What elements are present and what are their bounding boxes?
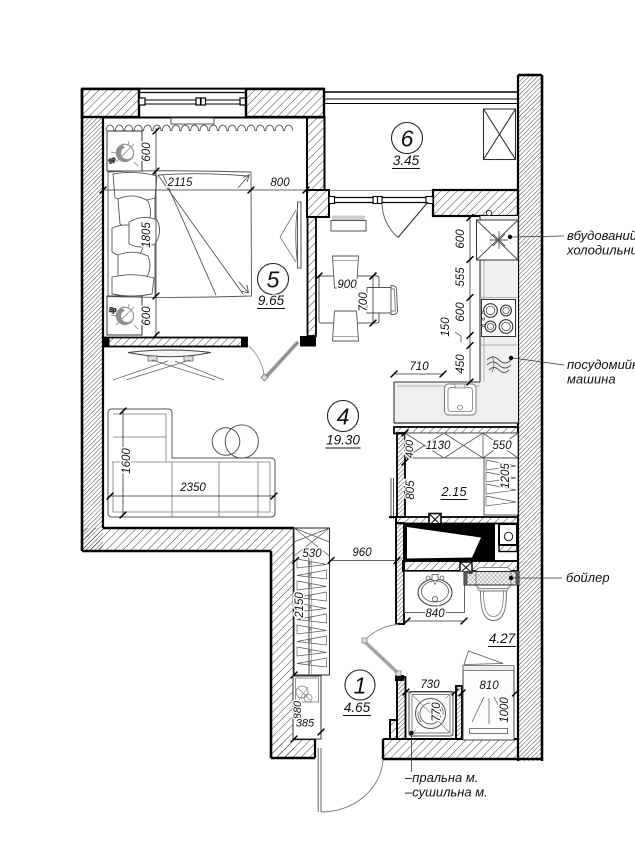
svg-text:1000: 1000: [499, 697, 511, 723]
svg-text:бойлер: бойлер: [566, 570, 610, 585]
svg-text:770: 770: [431, 702, 443, 722]
svg-text:6: 6: [401, 125, 414, 151]
svg-text:710: 710: [409, 361, 429, 373]
svg-text:530: 530: [302, 548, 322, 560]
svg-text:600: 600: [455, 229, 467, 249]
svg-text:машина: машина: [567, 372, 616, 387]
svg-text:1: 1: [354, 672, 367, 698]
svg-text:800: 800: [270, 177, 290, 189]
svg-text:9.65: 9.65: [258, 293, 285, 308]
svg-text:1205: 1205: [500, 463, 512, 489]
svg-text:730: 730: [420, 679, 440, 691]
svg-text:2150: 2150: [294, 592, 306, 619]
svg-text:вбудований: вбудований: [567, 228, 635, 243]
svg-text:600: 600: [141, 142, 153, 162]
svg-text:–пральна м.: –пральна м.: [404, 770, 478, 785]
svg-text:4.65: 4.65: [344, 700, 371, 715]
svg-text:385: 385: [296, 718, 315, 730]
svg-text:960: 960: [352, 547, 372, 559]
svg-text:900: 900: [337, 279, 357, 291]
svg-text:1130: 1130: [426, 440, 451, 452]
svg-text:2350: 2350: [179, 482, 206, 494]
svg-text:840: 840: [425, 608, 445, 620]
svg-text:Sp: Sp: [109, 308, 117, 314]
svg-text:4.27: 4.27: [489, 631, 516, 646]
svg-text:1805: 1805: [141, 222, 153, 248]
svg-text:810: 810: [479, 680, 499, 692]
svg-text:150: 150: [440, 317, 452, 337]
svg-text:2.15: 2.15: [440, 484, 467, 499]
svg-text:5: 5: [267, 266, 280, 292]
svg-text:1600: 1600: [121, 448, 133, 474]
svg-text:400: 400: [404, 439, 416, 458]
svg-text:–сушильна м.: –сушильна м.: [404, 785, 488, 800]
svg-text:3.45: 3.45: [393, 153, 420, 168]
svg-text:700: 700: [358, 292, 370, 312]
svg-text:600: 600: [141, 306, 153, 326]
svg-text:посудомийна: посудомийна: [567, 357, 635, 372]
svg-text:холодильник: холодильник: [566, 243, 635, 258]
svg-text:805: 805: [405, 480, 417, 500]
svg-text:450: 450: [455, 354, 467, 374]
svg-text:600: 600: [455, 302, 467, 322]
svg-text:550: 550: [492, 440, 512, 452]
svg-text:4: 4: [337, 403, 350, 429]
svg-text:19.30: 19.30: [326, 433, 360, 448]
svg-text:880: 880: [292, 700, 304, 719]
svg-text:2115: 2115: [167, 177, 193, 189]
svg-text:555: 555: [455, 267, 467, 287]
